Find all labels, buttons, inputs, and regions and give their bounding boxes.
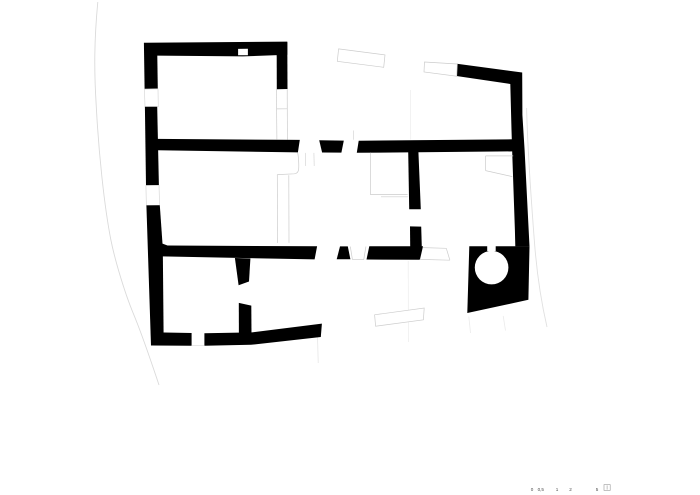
svg-text:5: 5 xyxy=(596,487,599,492)
svg-text:0: 0 xyxy=(531,487,534,492)
svg-text:1: 1 xyxy=(556,487,559,492)
svg-text:0,5: 0,5 xyxy=(538,487,545,492)
svg-text:2: 2 xyxy=(569,487,572,492)
